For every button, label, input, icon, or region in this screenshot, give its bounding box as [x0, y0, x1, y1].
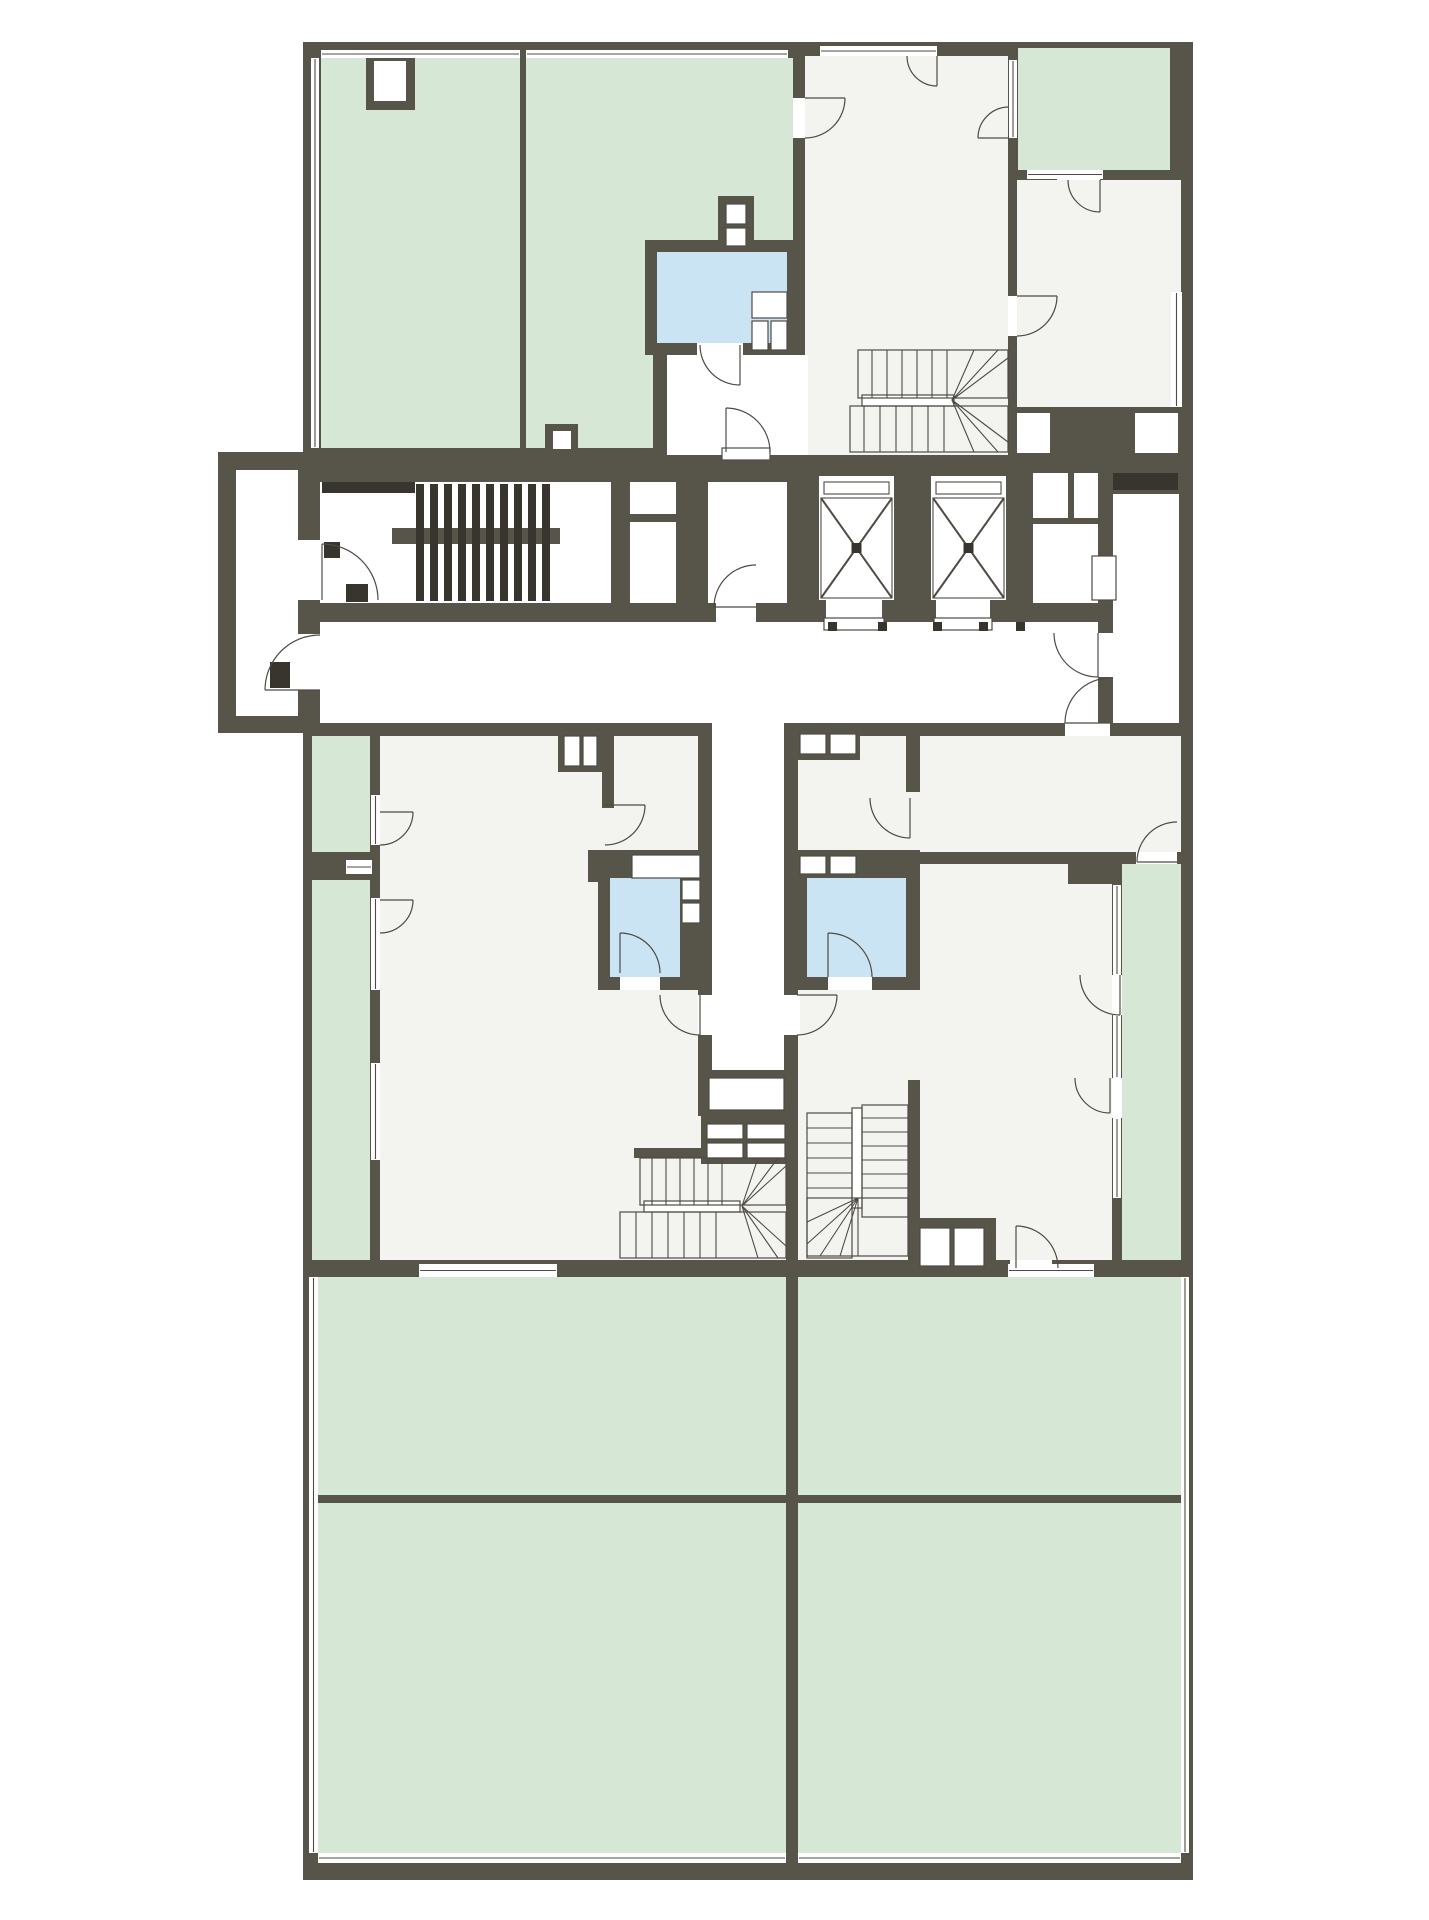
stairwell-edge-strip — [322, 482, 415, 493]
small-room-wall-right-apt — [906, 736, 920, 792]
door-gap-vestibule-corridor — [716, 603, 756, 622]
duct-bath2-cell-1 — [800, 856, 826, 874]
door-gap-stem-right — [784, 995, 800, 1035]
stem-corridor-opening — [712, 723, 784, 736]
door-track-dot — [878, 622, 887, 631]
door-gap-stairwell — [296, 540, 322, 600]
terrace-top-left — [321, 58, 520, 448]
elevator-shaft-1-cab — [819, 476, 894, 600]
cupboard-cell-3 — [707, 1143, 743, 1158]
door-gap-hall-green — [793, 98, 805, 138]
garden-bottom-right — [798, 1503, 1181, 1853]
corridor-stem — [712, 736, 784, 1116]
stair-machine-hatch-bar — [430, 484, 438, 601]
vestibule-left-wall — [653, 352, 667, 455]
stair-machine-hatch-bar — [500, 484, 508, 601]
bathroom-2 — [807, 878, 906, 977]
stair-machine-hatch-bar — [542, 484, 550, 601]
stair-stringer-right — [852, 1108, 862, 1208]
stair-hall-stub-left — [634, 1148, 706, 1158]
column-core-left — [374, 61, 406, 101]
terrace-bottom-right — [798, 1277, 1181, 1495]
kitchen-counter — [632, 855, 700, 878]
fixture-bath-top-1 — [752, 292, 787, 318]
terrace-divider-wall — [520, 58, 526, 448]
elevator-shaft-2-door — [936, 482, 1001, 494]
duct-top-cell-2 — [726, 228, 746, 246]
vestibule-sill — [722, 448, 770, 460]
store-room-right — [1113, 494, 1179, 723]
stair-machine-hatch-bar — [472, 484, 480, 601]
garden-bottom-left — [318, 1503, 786, 1853]
core-slot-divider — [630, 514, 676, 522]
stair-machine-hatch-bar — [486, 484, 494, 601]
door-gap-right-wall-2 — [1112, 1078, 1122, 1118]
stair-machine-hatch-bar — [416, 484, 424, 601]
vestibule-top — [667, 355, 808, 455]
stair-machine-hatch-bar — [444, 484, 452, 601]
terrace-top-right-square — [1018, 48, 1170, 170]
fixture-bath-top-2 — [752, 321, 768, 350]
elevator-door-gap-1 — [826, 600, 882, 620]
door-leaf-block-3 — [270, 662, 290, 688]
duct-left-apt-cell-2 — [583, 736, 597, 766]
duct-top-cell-1 — [726, 204, 746, 224]
door-gap-bath-top — [697, 343, 743, 355]
terrace-strip-left — [312, 736, 370, 1260]
terrace-garden-divider — [312, 1495, 1181, 1503]
stair-machine-hatch-bar — [514, 484, 522, 601]
door-gap-bath-2 — [828, 977, 872, 990]
duct-left-apt-cell-1 — [564, 736, 580, 766]
stair-handrail-top — [862, 395, 954, 406]
fixture-bath1-2 — [682, 903, 700, 923]
fixture-bath1-1 — [682, 880, 700, 900]
elevator-shaft-1-center — [852, 543, 862, 553]
floor-plan-svg — [0, 0, 1429, 1920]
shaft-cell-a — [1017, 413, 1050, 453]
door-track-dot — [979, 622, 988, 631]
door-gap-midwall — [1008, 296, 1017, 336]
elevator-door-gap-2 — [936, 600, 990, 620]
door-gap-bath-1 — [620, 977, 660, 990]
room-top-right — [1017, 180, 1181, 407]
core-duct-1 — [1033, 473, 1068, 518]
door-leaf-block-1 — [346, 584, 368, 602]
door-gap-annex — [296, 634, 322, 690]
duct-right-apt-cell-1 — [800, 734, 826, 754]
door-gap-corridor-end — [1065, 723, 1110, 736]
terrace-bottom-left — [318, 1277, 786, 1495]
stair-handrail-left — [644, 1201, 740, 1212]
elevator-shaft-1-door — [824, 482, 889, 494]
column-core-mid — [553, 431, 571, 449]
stem-end-window — [709, 1078, 784, 1110]
stair-machine-hatch-bar — [528, 484, 536, 601]
terrace-strip-right — [1122, 864, 1181, 1260]
door-track-dot — [828, 622, 837, 631]
cupboard-cell-2 — [747, 1124, 785, 1139]
door-gap-store — [1098, 633, 1113, 677]
cupboard-cell-1 — [707, 1124, 743, 1139]
stair-machine-hatch-bar — [458, 484, 466, 601]
right-cells-1 — [920, 1228, 950, 1266]
store-niche — [1092, 556, 1116, 600]
duct-bath2-cell-2 — [830, 856, 856, 874]
elevator-shaft-2-cab — [931, 476, 1006, 600]
duct-right-apt-cell-2 — [830, 734, 856, 754]
core-slot-1 — [630, 482, 676, 603]
dark-lintel-right — [1113, 473, 1178, 490]
shaft-cell-b — [1135, 413, 1178, 453]
right-cells-2 — [954, 1228, 984, 1266]
fixture-bath-top-3 — [771, 321, 787, 350]
floor-plan-page — [0, 0, 1429, 1920]
door-track-dot — [933, 622, 942, 631]
door-track-dot — [1016, 622, 1025, 631]
elevator-shaft-2-center — [964, 543, 974, 553]
cupboard-cell-4 — [747, 1143, 785, 1158]
core-duct-3 — [1033, 524, 1098, 603]
core-duct-2 — [1074, 473, 1098, 518]
corridor-main — [320, 622, 1098, 723]
